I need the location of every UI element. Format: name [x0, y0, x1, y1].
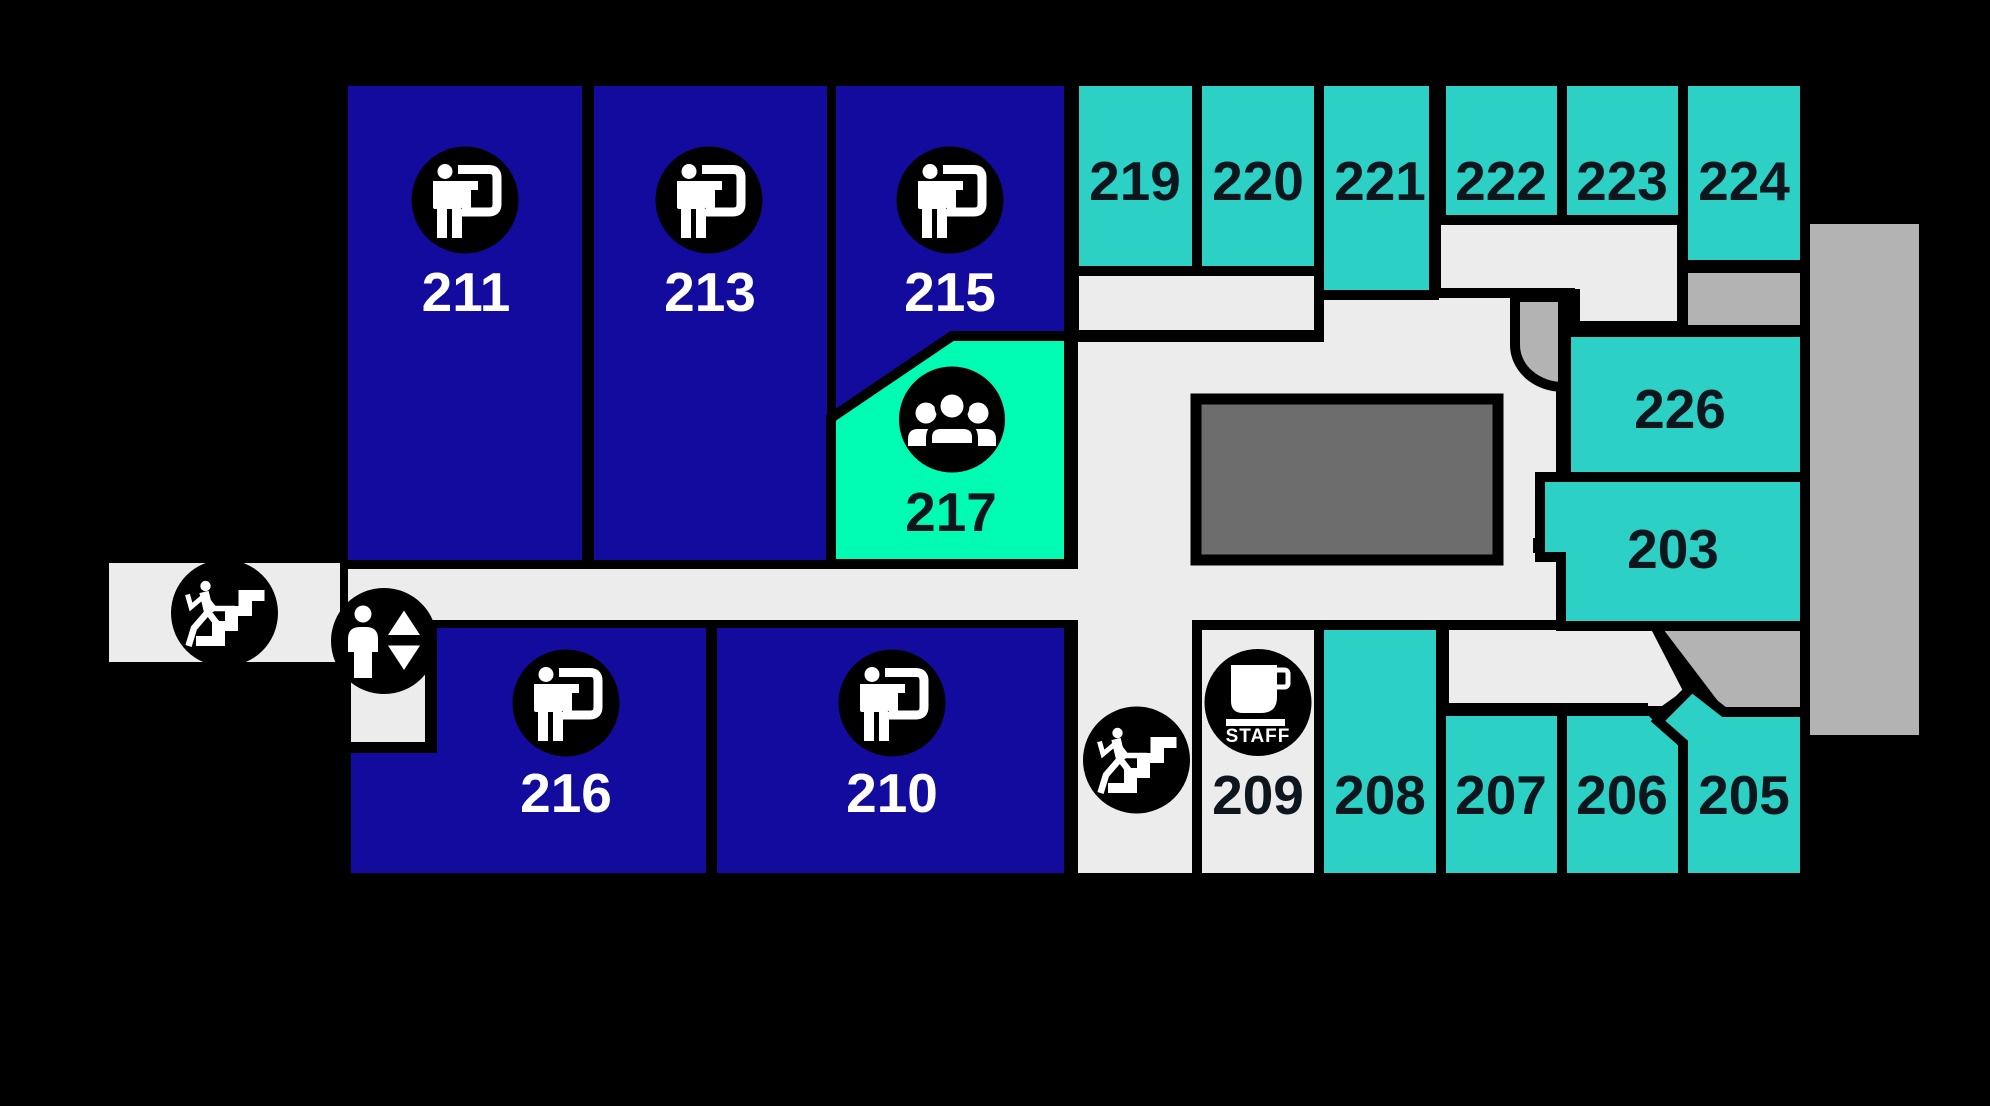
svg-text:215: 215 [904, 261, 996, 323]
svg-text:210: 210 [846, 762, 938, 824]
svg-text:216: 216 [520, 762, 612, 824]
svg-text:203: 203 [1627, 518, 1719, 580]
svg-text:213: 213 [664, 261, 756, 323]
svg-text:217: 217 [905, 481, 997, 543]
svg-text:206: 206 [1576, 764, 1668, 826]
svg-text:208: 208 [1334, 764, 1426, 826]
svg-text:211: 211 [422, 261, 511, 323]
svg-text:220: 220 [1212, 150, 1304, 212]
svg-text:221: 221 [1334, 150, 1426, 212]
svg-text:226: 226 [1634, 378, 1726, 440]
svg-text:223: 223 [1576, 150, 1668, 212]
svg-text:222: 222 [1455, 150, 1547, 212]
svg-text:207: 207 [1455, 764, 1547, 826]
svg-text:205: 205 [1698, 764, 1790, 826]
svg-text:STAFF: STAFF [1226, 726, 1291, 747]
svg-text:219: 219 [1089, 150, 1181, 212]
svg-text:224: 224 [1698, 150, 1790, 212]
svg-text:209: 209 [1212, 764, 1304, 826]
